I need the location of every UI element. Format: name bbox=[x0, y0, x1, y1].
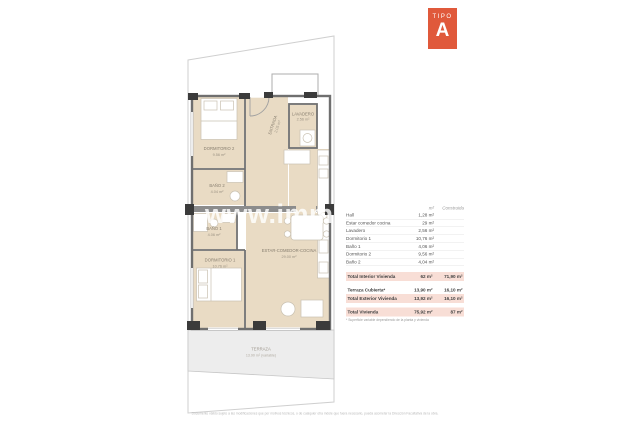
table-row: Hall 1,28 m² bbox=[346, 212, 464, 220]
room-area-dormitorio1: 10.76 m² bbox=[213, 265, 229, 269]
total-interior-row: Total Interior Vivienda 62 m² 71,90 m² bbox=[346, 272, 464, 281]
row-value: 29 m² bbox=[405, 220, 434, 225]
row-label: Estar comedor cocina bbox=[346, 220, 405, 225]
total-exterior-row: Total Exterior Vivienda 13,92 m² 16,10 m… bbox=[346, 294, 464, 303]
total-construida: 71,90 m² bbox=[433, 274, 463, 279]
row-label: Dormitorio 2 bbox=[346, 252, 405, 257]
total-label: Terraza Cubierta* bbox=[348, 287, 404, 292]
row-label: Dormitorio 1 bbox=[346, 236, 405, 241]
header-util: m² bbox=[405, 206, 434, 211]
row-value: 4,06 m² bbox=[405, 244, 434, 249]
watermark-text: www.immo bbox=[204, 199, 351, 229]
floorplan-page: www.immo DORMITORIO 2 9.56 m² ENTRADA 2.… bbox=[0, 0, 630, 430]
table-row: Baño 1 4,06 m² bbox=[346, 243, 464, 251]
table-row: Lavadero 2,56 m² bbox=[346, 227, 464, 235]
table-row: Baño 2 4,04 m² bbox=[346, 258, 464, 266]
total-label: Total Vivienda bbox=[348, 310, 404, 315]
total-construida: 16,10 m² bbox=[433, 287, 463, 292]
room-area-lavadero: 2.56 m² bbox=[297, 118, 311, 122]
table-row: Dormitorio 2 9,56 m² bbox=[346, 250, 464, 258]
room-label-dormitorio1: DORMITORIO 1 bbox=[205, 258, 236, 263]
row-label: Baño 1 bbox=[346, 244, 405, 249]
row-value: 4,04 m² bbox=[405, 259, 434, 264]
row-label: Baño 2 bbox=[346, 259, 405, 264]
room-label-dormitorio2: DORMITORIO 2 bbox=[204, 146, 235, 151]
row-value: 2,56 m² bbox=[405, 228, 434, 233]
total-util: 13,92 m² bbox=[404, 296, 433, 301]
type-badge-letter: A bbox=[428, 21, 457, 41]
row-value: 9,56 m² bbox=[405, 252, 434, 257]
room-label-terraza: TERRAZA bbox=[251, 347, 271, 352]
table-footnote: * Superficie variable dependiendo de la … bbox=[346, 319, 464, 323]
room-label-bano2: BAÑO 2 bbox=[209, 183, 225, 188]
row-label: Lavadero bbox=[346, 228, 405, 233]
room-label-lavadero: LAVADERO bbox=[292, 112, 315, 117]
footer-disclaimer: Documento válido sujeto a las modificaci… bbox=[105, 412, 525, 416]
total-util: 75,92 m² bbox=[404, 310, 433, 315]
table-row: Dormitorio 1 10,76 m² bbox=[346, 235, 464, 243]
row-label: Hall bbox=[346, 213, 405, 218]
row-value: 10,76 m² bbox=[405, 236, 434, 241]
table-row: Estar comedor cocina 29 m² bbox=[346, 219, 464, 227]
type-badge: TIPO A bbox=[428, 8, 457, 49]
room-area-bano2: 4.04 m² bbox=[211, 190, 225, 194]
room-label-estar: ESTAR-COMEDOR-COCINA bbox=[262, 248, 317, 253]
floorplan-drawing: www.immo DORMITORIO 2 9.56 m² ENTRADA 2.… bbox=[0, 0, 630, 430]
area-table: m² Construida Hall 1,28 m² Estar comedor… bbox=[346, 202, 464, 322]
total-util: 13,90 m² bbox=[404, 287, 433, 292]
total-construida: 16,10 m² bbox=[433, 296, 463, 301]
room-area-bano1: 4.06 m² bbox=[208, 233, 222, 237]
total-construida: 87 m² bbox=[433, 310, 463, 315]
room-area-estar: 29.00 m² bbox=[282, 255, 298, 259]
footer: Documento válido sujeto a las modificaci… bbox=[105, 412, 525, 422]
area-table-header: m² Construida bbox=[346, 202, 464, 212]
header-construida: Construida bbox=[434, 206, 464, 211]
total-util: 62 m² bbox=[404, 274, 433, 279]
total-label: Total Interior Vivienda bbox=[348, 274, 404, 279]
room-area-dormitorio2: 9.56 m² bbox=[213, 153, 227, 157]
room-area-terraza: 13.90 m² (variable) bbox=[246, 354, 276, 358]
row-value: 1,28 m² bbox=[405, 213, 434, 218]
total-label: Total Exterior Vivienda bbox=[348, 296, 404, 301]
total-vivienda-row: Total Vivienda 75,92 m² 87 m² bbox=[346, 308, 464, 317]
room-label-bano1: BAÑO 1 bbox=[206, 226, 222, 231]
terraza-cubierta-row: Terraza Cubierta* 13,90 m² 16,10 m² bbox=[346, 286, 464, 295]
